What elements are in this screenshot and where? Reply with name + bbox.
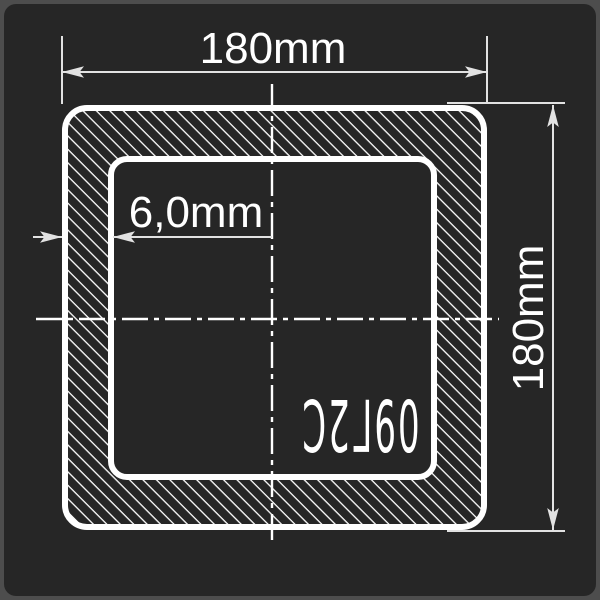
height-dimension-label: 180mm	[504, 245, 553, 392]
drawing-panel: 180mm 180mm 6,0mm 09Г2С	[4, 4, 596, 596]
width-dimension: 180mm	[62, 24, 487, 104]
thickness-dimension-label: 6,0mm	[129, 188, 263, 237]
steel-grade-marking: 09Г2С	[300, 382, 419, 465]
technical-drawing: 180mm 180mm 6,0mm 09Г2С	[4, 4, 596, 596]
width-dimension-label: 180mm	[200, 24, 347, 73]
steel-grade-label: 09Г2С	[300, 382, 419, 465]
